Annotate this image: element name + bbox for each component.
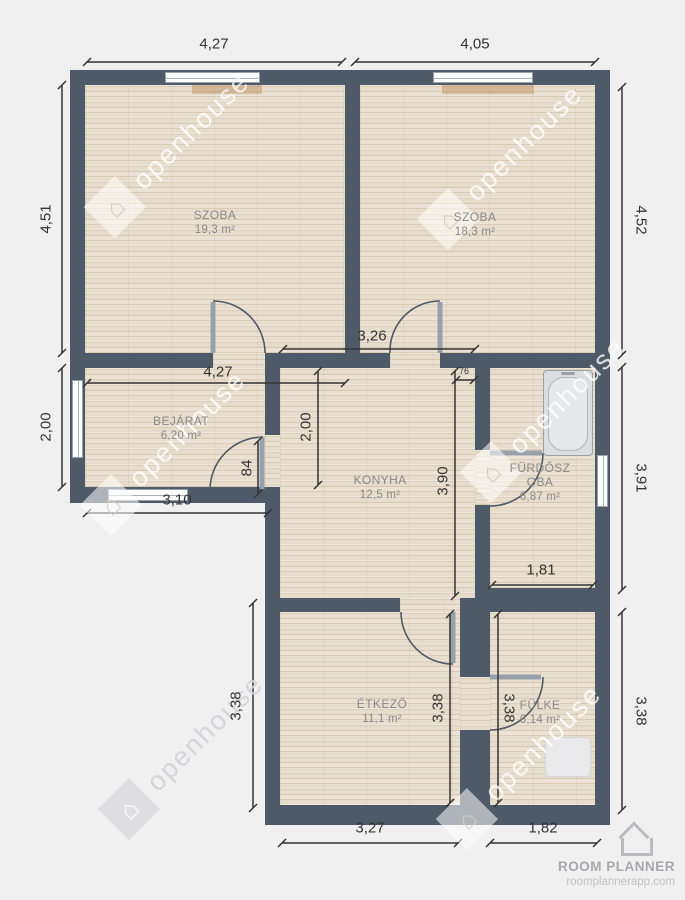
bathtub-basin [548,377,588,451]
wall-nook-divider [460,598,490,677]
room-label-szoba-2: SZOBA 18,3 m² [454,210,497,238]
window [165,72,260,83]
wall-kitchen-left [265,490,280,612]
dim-label-bottom-nook: 1,82 [528,820,557,837]
radiator-shadow [192,85,262,94]
window [72,380,83,458]
floor-plan: 4,27 4,05 4,51 2,00 3,38 4,52 3,91 3,38 … [0,0,685,900]
dim-label-right-upper: 4,52 [633,205,650,234]
dim-label-entry-door: 84 [239,460,256,477]
room-label-bejarat: BEJÁRAT 6,20 m² [153,414,209,442]
dim-label-entry-top: 4,27 [203,364,232,381]
door-opening-floor [400,598,460,612]
radiator-shadow [442,85,534,94]
bathtub-fixture [543,370,593,456]
dim-label-left-upper: 4,51 [38,204,55,233]
wall-dining-left [265,598,280,825]
dim-label-bath-door: 76 [459,366,469,376]
wall-dining-top [265,598,400,612]
dim-label-dining-right: 3,38 [430,693,447,722]
faucet-icon [561,372,575,375]
openhouse-logo-icon: ⌂ [98,778,160,840]
room-label-szoba-1: SZOBA 19,3 m² [194,208,237,236]
door-opening-floor [475,450,490,505]
dim-label-left-dining: 3,38 [228,691,245,720]
house-icon [621,838,653,856]
room-label-etkezo: ÉTKEZŐ 11,1 m² [357,697,407,725]
door-opening-floor [460,677,490,730]
dim-label-kitchen-left: 2,00 [298,412,315,441]
dim-label-left-entry: 2,00 [38,412,55,441]
dim-label-top-right: 4,05 [460,36,489,53]
dim-label-top-left: 4,27 [199,36,228,53]
room-label-fulke: FÜLKE 6,14 m² [520,698,561,726]
dim-label-kitchen-top: 3,26 [357,328,386,345]
dim-label-bottom-dining: 3,27 [355,820,384,837]
window [433,72,533,83]
app-name: ROOM PLANNER [558,859,675,874]
appliance-fixture [545,737,591,777]
wall-kitchen-left [265,368,280,435]
dim-label-right-middle: 3,91 [633,463,650,492]
dim-label-right-lower: 3,38 [633,696,650,725]
wall-mid-band [70,353,213,368]
dim-label-entry-bottom: 3,10 [162,492,191,509]
wall-bath-left [475,368,490,450]
roomplanner-branding: ROOM PLANNER roomplannerapp.com [558,838,675,888]
room-label-furdoszoba: FÜRDŐSZOBA 6,87 m² [508,461,572,503]
wall-bottom [265,805,610,825]
wall-bath-bottom [475,588,610,612]
dim-label-bath-bottom: 1,81 [526,562,555,579]
openhouse-watermark: ⌂ openhouse [98,664,275,841]
wall-room-divider [345,85,360,353]
room-label-konyha: KONYHA 12,5 m² [353,473,406,501]
door-opening-floor [390,353,440,368]
dim-label-nook-left: 3,38 [501,693,518,722]
door-opening-floor [265,435,280,490]
dim-label-kitchen-right: 3,90 [435,466,452,495]
app-url: roomplannerapp.com [558,876,675,888]
window [597,455,608,507]
wall-mid-band [265,353,390,368]
